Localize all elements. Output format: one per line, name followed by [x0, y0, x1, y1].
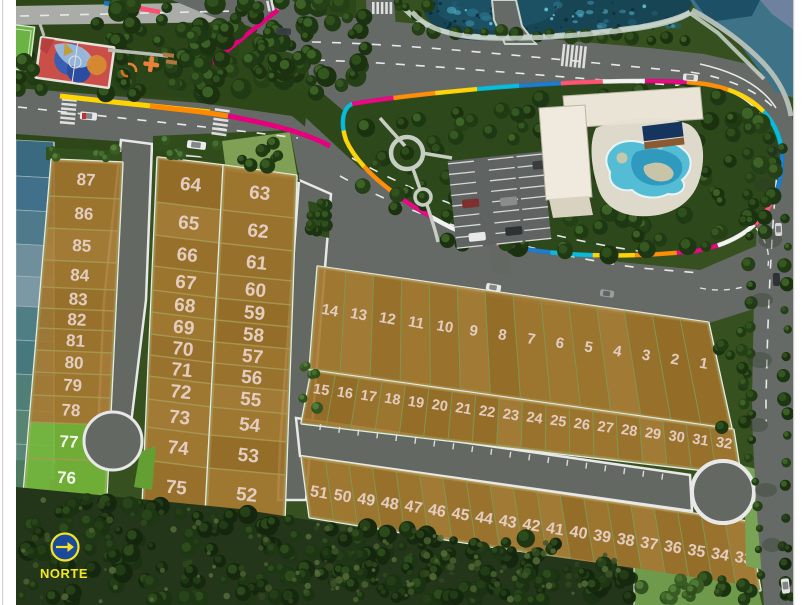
svg-text:82: 82 — [67, 310, 87, 330]
svg-text:50: 50 — [332, 487, 353, 507]
svg-text:85: 85 — [72, 236, 92, 256]
svg-text:19: 19 — [407, 394, 425, 412]
svg-text:39: 39 — [592, 527, 613, 547]
svg-text:37: 37 — [639, 534, 660, 554]
svg-text:87: 87 — [76, 170, 96, 190]
svg-text:84: 84 — [70, 265, 90, 285]
svg-text:69: 69 — [172, 317, 195, 340]
svg-text:83: 83 — [68, 289, 88, 309]
svg-text:20: 20 — [431, 397, 449, 415]
svg-text:59: 59 — [243, 302, 266, 325]
svg-text:74: 74 — [166, 437, 190, 460]
svg-text:28: 28 — [620, 422, 638, 440]
svg-text:49: 49 — [356, 490, 377, 510]
svg-text:30: 30 — [667, 428, 685, 446]
svg-text:38: 38 — [615, 531, 636, 551]
svg-text:47: 47 — [403, 498, 424, 518]
svg-text:61: 61 — [245, 252, 269, 275]
svg-text:34: 34 — [710, 545, 731, 565]
svg-text:NORTE: NORTE — [40, 566, 88, 581]
svg-text:11: 11 — [407, 313, 426, 332]
svg-text:26: 26 — [573, 416, 591, 434]
svg-text:67: 67 — [174, 272, 197, 295]
svg-text:76: 76 — [57, 468, 77, 488]
svg-text:86: 86 — [74, 204, 94, 224]
svg-text:77: 77 — [59, 432, 79, 452]
svg-text:46: 46 — [427, 501, 448, 521]
svg-text:80: 80 — [64, 353, 84, 373]
svg-text:55: 55 — [239, 389, 263, 412]
svg-text:17: 17 — [359, 387, 377, 405]
svg-text:79: 79 — [63, 375, 83, 395]
svg-text:60: 60 — [244, 279, 267, 302]
svg-text:21: 21 — [454, 400, 472, 418]
svg-text:68: 68 — [173, 295, 196, 318]
svg-text:65: 65 — [177, 212, 201, 235]
svg-text:27: 27 — [596, 419, 614, 437]
svg-text:35: 35 — [686, 542, 707, 562]
svg-text:10: 10 — [435, 317, 454, 337]
svg-text:51: 51 — [309, 483, 330, 503]
svg-text:53: 53 — [237, 445, 260, 468]
svg-text:75: 75 — [165, 477, 189, 500]
svg-text:44: 44 — [474, 509, 495, 529]
svg-text:66: 66 — [176, 244, 199, 267]
svg-text:45: 45 — [450, 505, 471, 525]
svg-text:40: 40 — [568, 523, 589, 543]
svg-text:72: 72 — [169, 381, 192, 404]
svg-text:36: 36 — [663, 538, 684, 558]
svg-text:52: 52 — [235, 484, 258, 507]
svg-text:12: 12 — [378, 309, 397, 329]
svg-text:32: 32 — [715, 434, 733, 452]
svg-text:16: 16 — [336, 384, 354, 402]
svg-text:43: 43 — [497, 512, 518, 532]
svg-text:63: 63 — [248, 182, 271, 205]
svg-text:25: 25 — [549, 412, 567, 430]
svg-text:58: 58 — [242, 324, 265, 347]
svg-text:62: 62 — [246, 220, 269, 243]
svg-text:24: 24 — [525, 409, 543, 427]
svg-text:22: 22 — [478, 403, 496, 421]
svg-text:31: 31 — [691, 431, 709, 449]
svg-text:15: 15 — [312, 381, 330, 399]
svg-text:78: 78 — [61, 400, 81, 420]
svg-text:29: 29 — [644, 425, 662, 443]
svg-text:23: 23 — [502, 406, 520, 424]
svg-text:48: 48 — [380, 494, 401, 514]
svg-text:41: 41 — [545, 520, 566, 540]
svg-text:81: 81 — [66, 331, 86, 351]
svg-text:13: 13 — [349, 305, 368, 325]
svg-text:73: 73 — [168, 407, 191, 430]
svg-text:18: 18 — [383, 391, 401, 409]
svg-text:54: 54 — [238, 414, 262, 437]
svg-text:64: 64 — [179, 174, 203, 197]
